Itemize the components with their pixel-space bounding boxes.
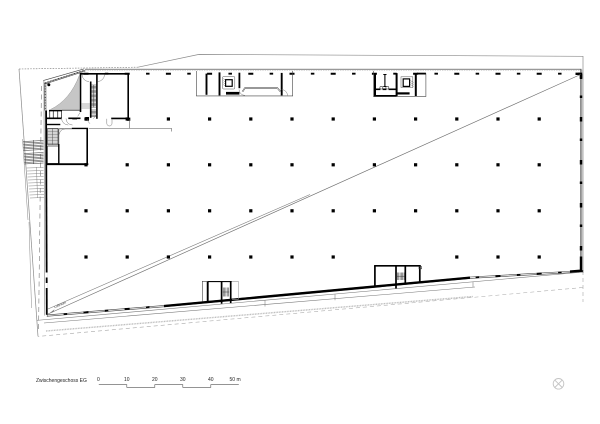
svg-text:10: 10 [124, 377, 130, 383]
svg-text:40: 40 [208, 377, 214, 383]
svg-text:0: 0 [97, 377, 100, 383]
svg-text:30: 30 [180, 377, 186, 383]
svg-text:50 m: 50 m [230, 377, 241, 383]
svg-text:20: 20 [152, 377, 158, 383]
svg-text:Zwischengeschoss EG: Zwischengeschoss EG [36, 378, 87, 384]
